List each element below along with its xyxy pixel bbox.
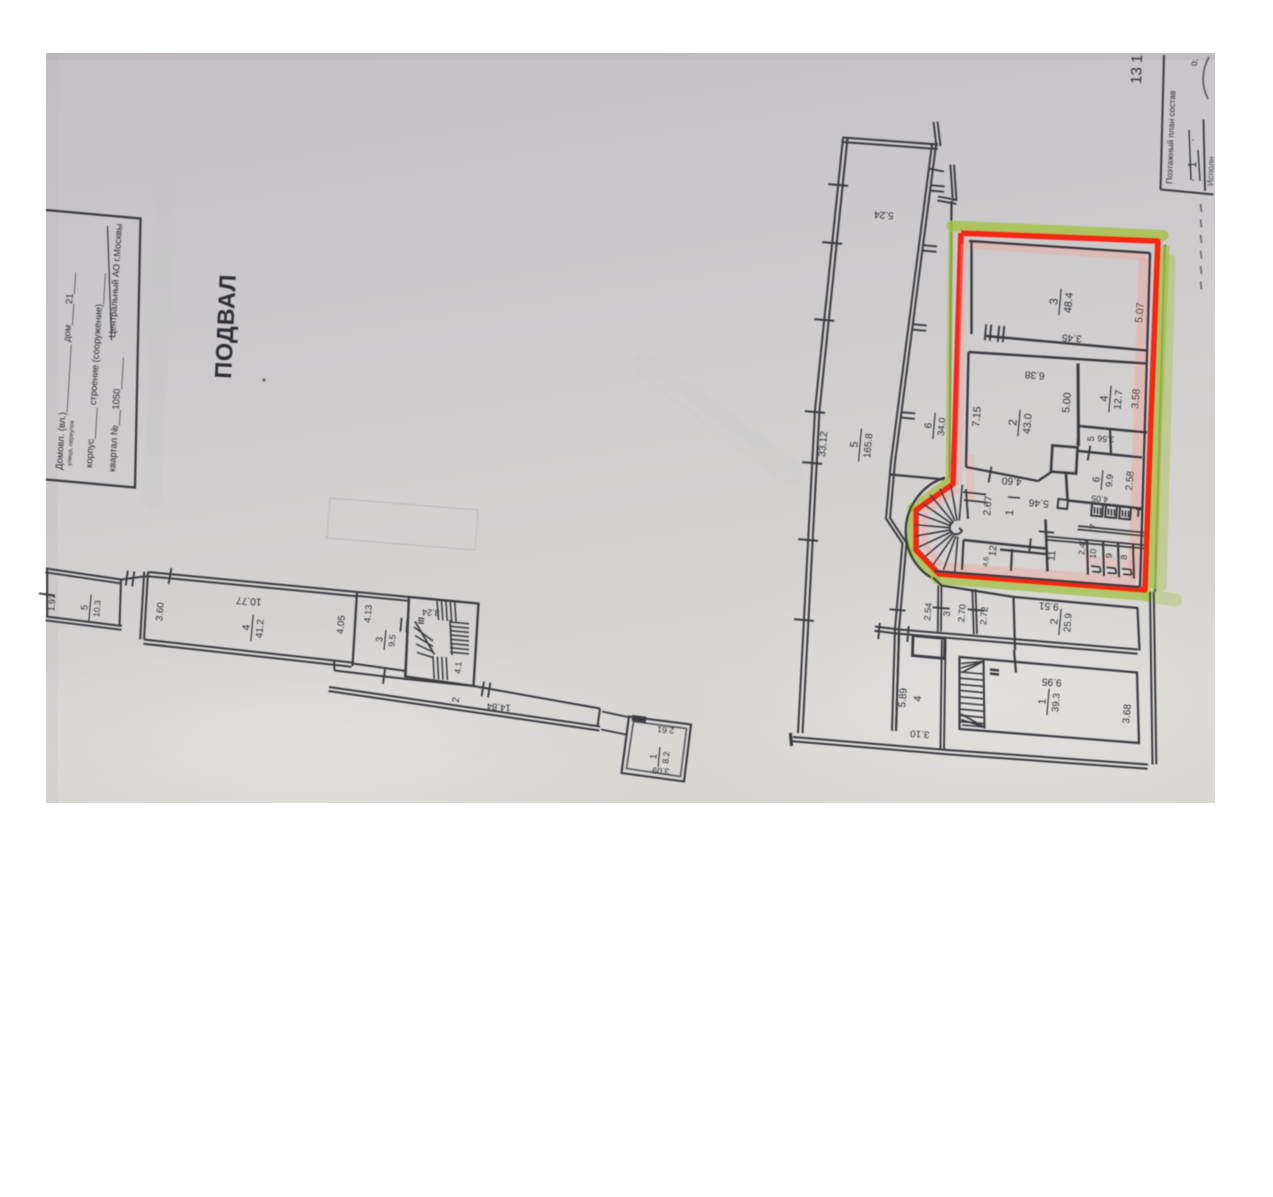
svg-text:4: 4	[240, 624, 252, 631]
svg-text:2: 2	[1007, 419, 1020, 426]
svg-text:9: 9	[1104, 553, 1114, 559]
svg-text:1: 1	[1187, 161, 1199, 168]
svg-text:12: 12	[988, 544, 1000, 556]
svg-text:4: 4	[912, 695, 924, 702]
svg-text:5: 5	[848, 441, 860, 448]
svg-text:2.61: 2.61	[657, 724, 675, 735]
svg-text:10: 10	[1088, 548, 1099, 559]
svg-text:2.67: 2.67	[982, 495, 995, 516]
svg-text:10.3: 10.3	[91, 600, 102, 618]
svg-text:9.9: 9.9	[1104, 474, 1115, 488]
svg-text:1.97: 1.97	[46, 594, 57, 612]
svg-text:43.0: 43.0	[1021, 413, 1035, 435]
svg-text:5.07: 5.07	[1133, 302, 1147, 324]
svg-text:ПОДВАЛ: ПОДВАЛ	[210, 273, 241, 379]
svg-text:5: 5	[79, 604, 90, 610]
svg-text:·: ·	[1187, 178, 1199, 182]
svg-text:13 1: 13 1	[1128, 54, 1146, 84]
svg-text:9.95: 9.95	[1041, 675, 1062, 687]
svg-text:10.77: 10.77	[235, 594, 262, 607]
svg-text:5.46: 5.46	[1028, 496, 1049, 508]
svg-text:41.2: 41.2	[254, 619, 267, 639]
svg-text:III: III	[416, 617, 427, 625]
svg-text:4.13: 4.13	[362, 604, 374, 623]
svg-text:2: 2	[1048, 618, 1060, 625]
svg-text:9.51: 9.51	[1038, 599, 1059, 611]
svg-text:2.58: 2.58	[1124, 470, 1137, 491]
svg-text:25.9: 25.9	[1062, 613, 1075, 633]
svg-text:14.84: 14.84	[486, 700, 511, 713]
svg-text:1: 1	[648, 753, 659, 759]
svg-text:3.10: 3.10	[909, 727, 929, 739]
svg-text:8: 8	[1119, 554, 1129, 560]
svg-text:3.58: 3.58	[1130, 388, 1143, 409]
svg-text:3.56: 3.56	[1097, 433, 1115, 444]
svg-text:4.1: 4.1	[453, 661, 464, 674]
svg-text:3.09: 3.09	[652, 765, 670, 776]
svg-text:2: 2	[451, 697, 462, 703]
svg-text:48.4: 48.4	[1062, 292, 1076, 314]
svg-text:1: 1	[1036, 698, 1048, 705]
svg-text:5.24: 5.24	[873, 208, 894, 220]
svg-text:11: 11	[1047, 550, 1059, 562]
svg-text:5.89: 5.89	[897, 687, 910, 708]
svg-text:165.8: 165.8	[862, 432, 875, 458]
svg-text:2.72: 2.72	[978, 606, 990, 625]
svg-text:·: ·	[1187, 138, 1199, 142]
svg-text:3: 3	[374, 636, 385, 642]
svg-text:3.45: 3.45	[1061, 331, 1082, 343]
svg-text:39.3: 39.3	[1050, 693, 1063, 713]
svg-text:7.15: 7.15	[970, 406, 984, 428]
svg-text:5.00: 5.00	[1060, 392, 1074, 414]
svg-text:Исполн: Исполн	[1205, 156, 1216, 186]
svg-text:5: 5	[1086, 436, 1097, 442]
svg-text:2.40: 2.40	[1076, 538, 1087, 555]
svg-text:4,6: 4,6	[981, 556, 991, 567]
svg-text:3.60: 3.60	[154, 602, 167, 622]
svg-text:3: 3	[1048, 298, 1061, 305]
svg-text:8.2: 8.2	[660, 751, 671, 764]
svg-text:0;: 0;	[1190, 59, 1199, 66]
svg-text:4: 4	[1098, 395, 1110, 402]
svg-text:2.70: 2.70	[956, 604, 968, 623]
svg-text:33.12: 33.12	[817, 431, 830, 458]
svg-text:12.7: 12.7	[1113, 389, 1126, 410]
svg-text:4.05: 4.05	[335, 615, 348, 635]
svg-text:6.38: 6.38	[1024, 368, 1045, 380]
svg-text:3.68: 3.68	[1121, 703, 1134, 724]
svg-text:34.0: 34.0	[935, 417, 948, 436]
svg-text:2.54: 2.54	[922, 602, 934, 621]
svg-text:9.5: 9.5	[386, 634, 397, 647]
svg-text:1: 1	[1004, 509, 1016, 516]
svg-text:3: 3	[942, 611, 953, 617]
